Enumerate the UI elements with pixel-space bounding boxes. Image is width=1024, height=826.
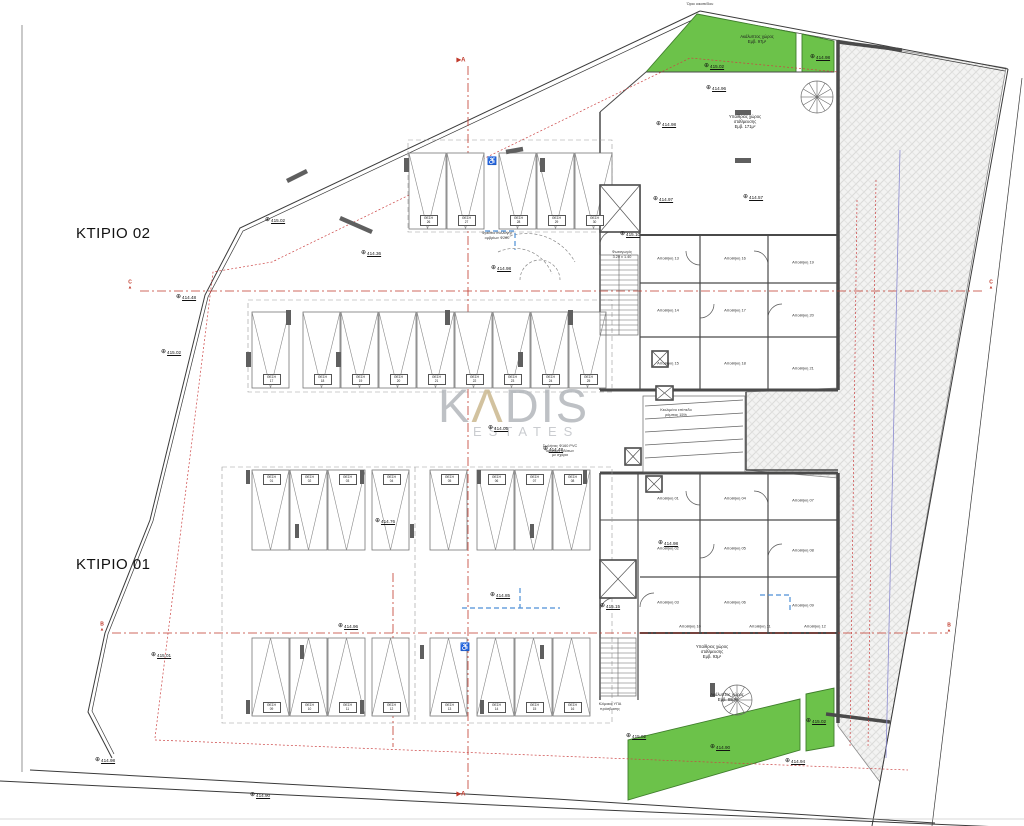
parking-stalls-layer bbox=[252, 153, 612, 716]
turning-arcs bbox=[498, 233, 575, 280]
site-plan-drawing bbox=[0, 0, 1024, 826]
drainage-lines bbox=[462, 231, 790, 610]
site-plan-canvas: ΚΤΙΡΙΟ 02 ΚΤΙΡΙΟ 01 KΛDIS ESTATES ΘΕΣΗ26… bbox=[0, 0, 1024, 826]
structural-columns-layer bbox=[246, 110, 751, 714]
hatched-terrain-area bbox=[746, 40, 1006, 782]
road-lines bbox=[0, 770, 1024, 826]
car-ramp bbox=[643, 396, 745, 472]
